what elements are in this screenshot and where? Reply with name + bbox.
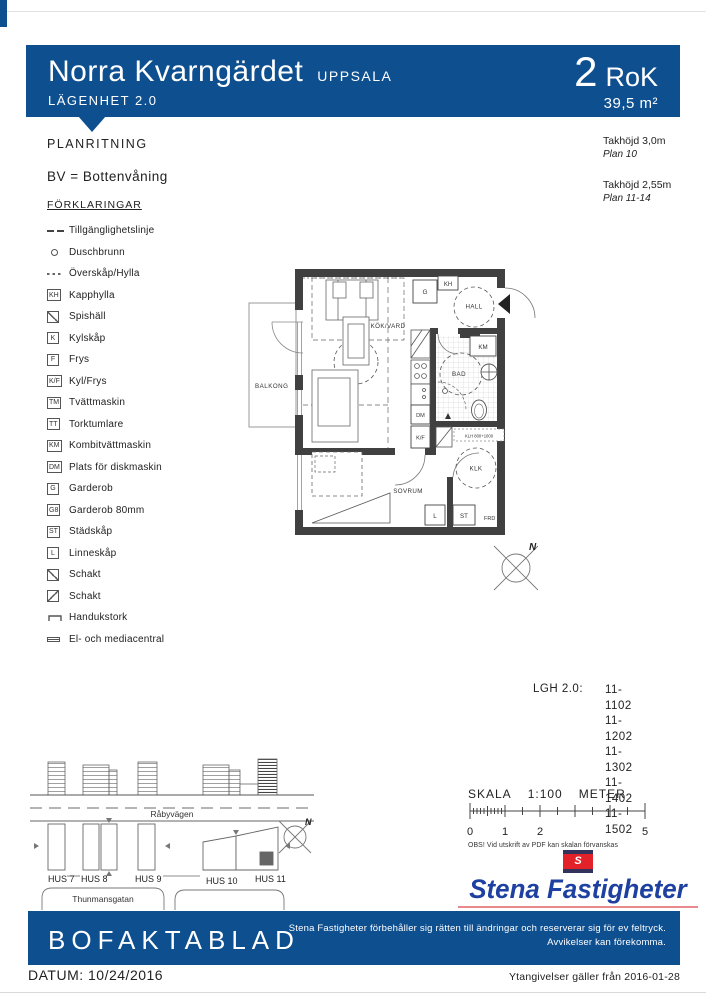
floorplan-drawing: BALKONG <box>248 262 538 594</box>
combo-washer-symbol: KM <box>47 440 62 452</box>
cleaning-closet-symbol: ST <box>47 526 60 538</box>
bv-note: BV = Bottenvåning <box>47 169 168 184</box>
legend-item: Handukstork <box>47 607 257 629</box>
datum-value: 10/24/2016 <box>88 967 163 983</box>
legend-item: Schakt <box>47 564 257 586</box>
apartment-number: 11-1202 <box>605 714 633 745</box>
legend-item: G Garderob <box>47 478 257 500</box>
ceiling-plan-1: Plan 10 <box>603 148 671 162</box>
overhead-cabinet-icon <box>47 273 63 275</box>
legend-label: Linneskåp <box>69 548 116 559</box>
house-label: HUS 8 <box>81 874 108 884</box>
box-diskmaskin: DM <box>416 413 425 419</box>
floor-drain-icon <box>51 249 58 256</box>
legend-item: El- och mediacentral <box>47 629 257 651</box>
entry-door-icon <box>498 294 510 314</box>
legend-label: Duschbrunn <box>69 247 125 258</box>
area-value: 39,5 m² <box>574 95 658 112</box>
legend-label: Garderob <box>69 483 113 494</box>
shaft-box <box>436 427 452 447</box>
legend-item: Tillgänglighetslinje <box>47 220 257 242</box>
legend-label: Spishäll <box>69 311 106 322</box>
stena-logo: S Stena Fastigheter <box>458 850 698 908</box>
legend-label: Kapphylla <box>69 290 115 301</box>
dryer-symbol: TT <box>47 418 60 430</box>
scale-unit: METER <box>579 787 626 801</box>
planritning-heading: PLANRITNING <box>47 137 148 151</box>
bofaktablad-page: Norra Kvarngärdet UPPSALA LÄGENHET 2.0 2… <box>0 0 706 1000</box>
ceiling-height-1: Takhöjd 3,0m <box>603 134 671 148</box>
legend-label: Överskåp/Hylla <box>69 268 140 279</box>
scalebar: SKALA 1:100 METER 0 1 2 5 <box>468 787 658 849</box>
street-outline <box>175 890 284 910</box>
current-building-marker <box>260 852 273 865</box>
ceiling-info: Takhöjd 3,0m Plan 10 Takhöjd 2,55m Plan … <box>603 134 671 206</box>
house-label: HUS 11 <box>255 874 286 884</box>
legend-item: TM Tvättmaskin <box>47 392 257 414</box>
legend-label: Tvättmaskin <box>69 397 125 408</box>
legend-item: Spishäll <box>47 306 257 328</box>
box-garderob: G <box>422 289 427 296</box>
wardrobe-symbol: G <box>47 483 59 495</box>
header-banner: Norra Kvarngärdet UPPSALA LÄGENHET 2.0 2… <box>26 45 680 117</box>
legend-item: KM Kombitvättmaskin <box>47 435 257 457</box>
footer-title: BOFAKTABLAD <box>48 925 300 956</box>
legend-item: TT Torktumlare <box>47 414 257 436</box>
legend-item: K Kylskåp <box>47 328 257 350</box>
lgh-heading: LGH 2.0: <box>533 683 605 695</box>
street-label: Thunmansgatan <box>72 894 134 904</box>
house-label: HUS 9 <box>135 874 162 884</box>
legend-item: KH Kapphylla <box>47 285 257 307</box>
ceiling-height-2: Takhöjd 2,55m <box>603 178 671 192</box>
linen-closet-symbol: L <box>47 547 59 559</box>
bedroom-furniture <box>312 452 390 523</box>
disclaimer-line: Stena Fastigheter förbehåller sig rätten… <box>289 922 666 936</box>
legend-label: Kyl/Frys <box>69 376 107 387</box>
legend-item: ST Städskåp <box>47 521 257 543</box>
legend-label: Tillgänglighetslinje <box>69 225 154 236</box>
legend: FÖRKLARINGAR Tillgänglighetslinje Duschb… <box>47 199 257 650</box>
legend-item: Duschbrunn <box>47 242 257 264</box>
legend-item: K/F Kyl/Frys <box>47 371 257 393</box>
el-media-central-icon <box>47 637 60 642</box>
scale-tick-label: 2 <box>537 826 543 838</box>
wardrobe-80-symbol: G8 <box>47 504 60 516</box>
legend-item: DM Plats för diskmaskin <box>47 457 257 479</box>
freezer-symbol: F <box>47 354 59 366</box>
flag-letter: S <box>563 854 593 869</box>
legend-item: G8 Garderob 80mm <box>47 500 257 522</box>
dishwasher-symbol: DM <box>47 461 62 473</box>
apartment-number: 11-1302 <box>605 745 633 776</box>
scale-ratio: 1:100 <box>528 787 563 801</box>
top-divider <box>0 11 706 12</box>
obs-note: OBS! Vid utskrift av PDF kan skalan förv… <box>468 842 658 849</box>
apartments-list: LGH 2.0: 11-1102 11-1202 11-1302 11-1402… <box>533 683 605 695</box>
hob-icon <box>47 311 59 323</box>
building-elevations <box>48 759 277 795</box>
logo-flag-icon: S <box>563 850 593 873</box>
legend-label: Plats för diskmaskin <box>69 462 162 473</box>
scale-ruler-icon <box>468 801 650 821</box>
apartment-label: LÄGENHET 2.0 <box>48 93 392 108</box>
city-label: UPPSALA <box>317 68 392 84</box>
room-label-klk: KLK <box>470 466 483 473</box>
shaft-icon <box>47 590 59 602</box>
hat-shelf-symbol: KH <box>47 289 61 301</box>
legend-label: Kylskåp <box>69 333 105 344</box>
footer-disclaimer: Stena Fastigheter förbehåller sig rätten… <box>289 922 666 950</box>
north-label: N <box>529 542 537 553</box>
rok-label: RoK <box>605 62 658 93</box>
room-label-balkong: BALKONG <box>255 383 288 390</box>
ceiling-plan-2: Plan 11-14 <box>603 192 671 206</box>
house-label: HUS 7 <box>48 874 75 884</box>
shelf-label: KLH 800+1000 <box>465 434 494 439</box>
header-left: Norra Kvarngärdet UPPSALA LÄGENHET 2.0 <box>48 55 392 108</box>
legend-heading: FÖRKLARINGAR <box>47 199 257 211</box>
box-linneskap: L <box>433 513 437 520</box>
washer-symbol: TM <box>47 397 61 409</box>
room-label-bad: BAD <box>452 371 466 378</box>
datum-row: DATUM: 10/24/2016 <box>28 967 163 983</box>
box-stadskap: ST <box>460 513 468 520</box>
legend-label: Torktumlare <box>69 419 123 430</box>
header-right: 2 RoK 39,5 m² <box>574 51 658 112</box>
box-kapphylla: KH <box>444 282 452 288</box>
disclaimer-line: Avvikelser kan förekomma. <box>289 936 666 950</box>
kitchen-counter <box>411 330 430 405</box>
bottom-divider <box>0 992 706 993</box>
box-kombimaskin: KM <box>478 344 487 351</box>
scale-word: SKALA <box>468 787 512 801</box>
legend-label: Kombitvättmaskin <box>69 440 151 451</box>
legend-item: Överskåp/Hylla <box>47 263 257 285</box>
shaft-icon <box>47 569 59 581</box>
legend-item: F Frys <box>47 349 257 371</box>
road-label: Råbyvägen <box>150 809 193 819</box>
legend-label: Frys <box>69 354 89 365</box>
validity-note: Ytangivelser gäller från 2016-01-28 <box>509 971 680 983</box>
page-title: Norra Kvarngärdet <box>48 55 303 89</box>
siteplan-drawing: Råbyvägen HUS 7 HUS 8 HUS 9 HUS 10 HUS 1… <box>22 748 322 910</box>
house-label: HUS 10 <box>206 876 238 886</box>
rok-count: 2 <box>574 51 597 93</box>
sofa <box>312 370 358 442</box>
legend-label: Städskåp <box>69 526 112 537</box>
fridge-freezer-symbol: K/F <box>47 375 62 387</box>
legend-label: El- och mediacentral <box>69 634 164 645</box>
apartment-number: 11-1102 <box>605 683 633 714</box>
scale-tick-label: 0 <box>467 826 473 838</box>
accessibility-line-icon <box>47 230 65 232</box>
towel-rail-icon <box>47 613 64 622</box>
datum-label: DATUM: <box>28 967 84 983</box>
legend-label: Schakt <box>69 569 101 580</box>
legend-label: Handukstork <box>69 612 127 623</box>
legend-label: Garderob 80mm <box>69 505 144 516</box>
scale-tick-label: 5 <box>642 826 648 838</box>
room-label-frd: FRD <box>484 516 495 522</box>
box-kylfrys: K/F <box>416 436 425 442</box>
building-footprints <box>48 824 278 870</box>
top-accent-bar <box>0 0 7 27</box>
logo-text: Stena Fastigheter <box>463 874 693 905</box>
logo-underline <box>458 906 698 908</box>
legend-label: Schakt <box>69 591 101 602</box>
room-label-kok: KÖK/VARD <box>371 323 406 330</box>
compass-icon: N <box>494 542 538 590</box>
fridge-symbol: K <box>47 332 59 344</box>
room-label-sovrum: SOVRUM <box>393 488 423 495</box>
room-label-hall: HALL <box>465 304 482 311</box>
site-north-label: N <box>305 817 312 827</box>
legend-item: L Linneskåp <box>47 543 257 565</box>
site-compass-icon: N <box>279 817 312 853</box>
legend-item: Schakt <box>47 586 257 608</box>
footer-banner: BOFAKTABLAD Stena Fastigheter förbehålle… <box>28 911 680 965</box>
scale-tick-label: 1 <box>502 826 508 838</box>
